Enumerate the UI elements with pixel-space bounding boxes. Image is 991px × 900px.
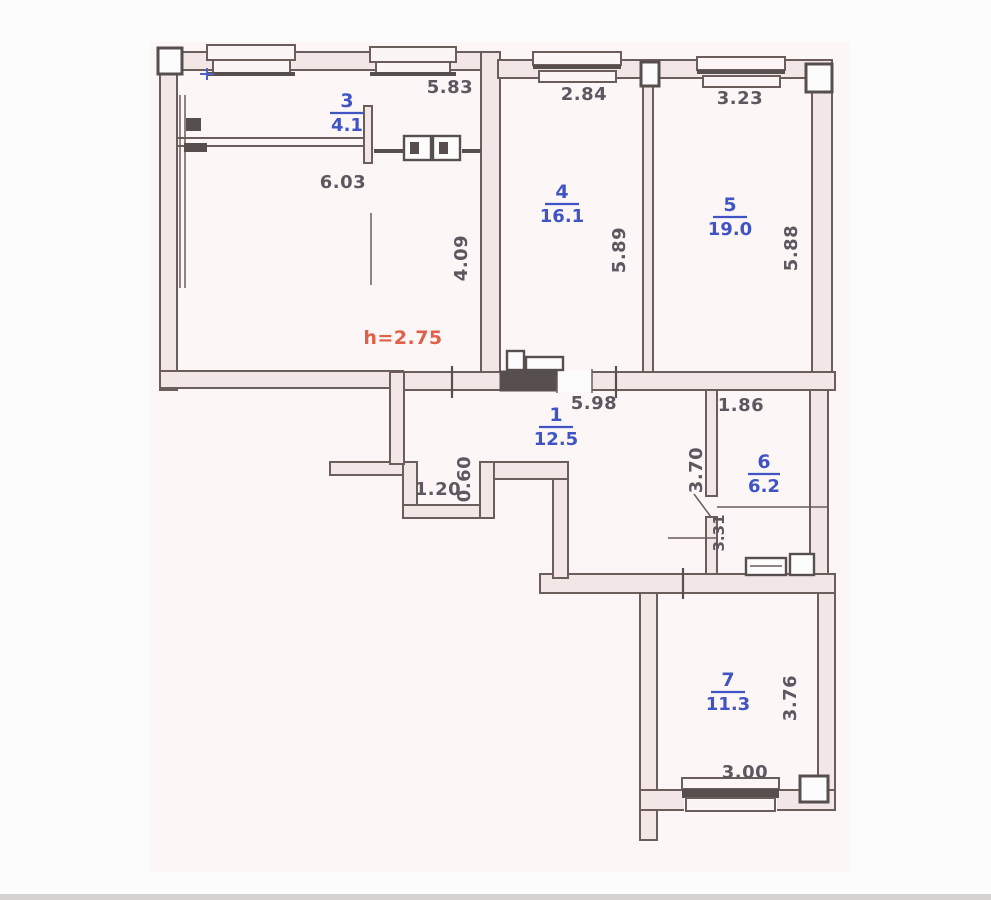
dim-big-room-right: 4.09: [451, 235, 472, 281]
dim-room4-top: 2.84: [561, 84, 607, 105]
room-3-area: 4.1: [331, 115, 363, 136]
bathroom-fixtures: [746, 554, 814, 575]
room-7-number: 7: [721, 669, 734, 691]
room-5-number: 5: [723, 194, 736, 216]
dim-niche-depth: 0.60: [454, 456, 475, 502]
dim-bath-left: 3.31: [710, 514, 728, 551]
dim-room6-left: 3.70: [686, 447, 707, 493]
room-4-number: 4: [555, 181, 568, 203]
dim-room6-top: 1.86: [718, 395, 764, 416]
dim-room4-right: 5.89: [609, 227, 630, 273]
room-1-area: 12.5: [534, 429, 578, 450]
dim-room7-right: 3.76: [780, 675, 801, 721]
room-6-area: 6.2: [748, 476, 780, 497]
floor-plan-canvas: 1 12.5 3 4.1 4 16.1 5 19.0 6 6.2 7 11.3 …: [0, 0, 991, 900]
dim-room5-right: 5.88: [781, 225, 802, 271]
dim-room7-bottom: 3.00: [722, 762, 768, 783]
room-5-area: 19.0: [708, 219, 752, 240]
room-4-area: 16.1: [540, 206, 584, 227]
room-7-area: 11.3: [706, 694, 750, 715]
floor-plan-page: 1 12.5 3 4.1 4 16.1 5 19.0 6 6.2 7 11.3 …: [0, 0, 991, 900]
dim-big-room-width: 6.03: [320, 172, 366, 193]
room-6-number: 6: [757, 451, 770, 473]
ceiling-height-note: h=2.75: [363, 327, 442, 349]
room-1-number: 1: [549, 404, 562, 426]
dim-big-room-top: 5.83: [427, 77, 473, 98]
dim-hall-top: 5.98: [571, 393, 617, 414]
dim-room5-top: 3.23: [717, 88, 763, 109]
room-3-number: 3: [340, 90, 353, 112]
